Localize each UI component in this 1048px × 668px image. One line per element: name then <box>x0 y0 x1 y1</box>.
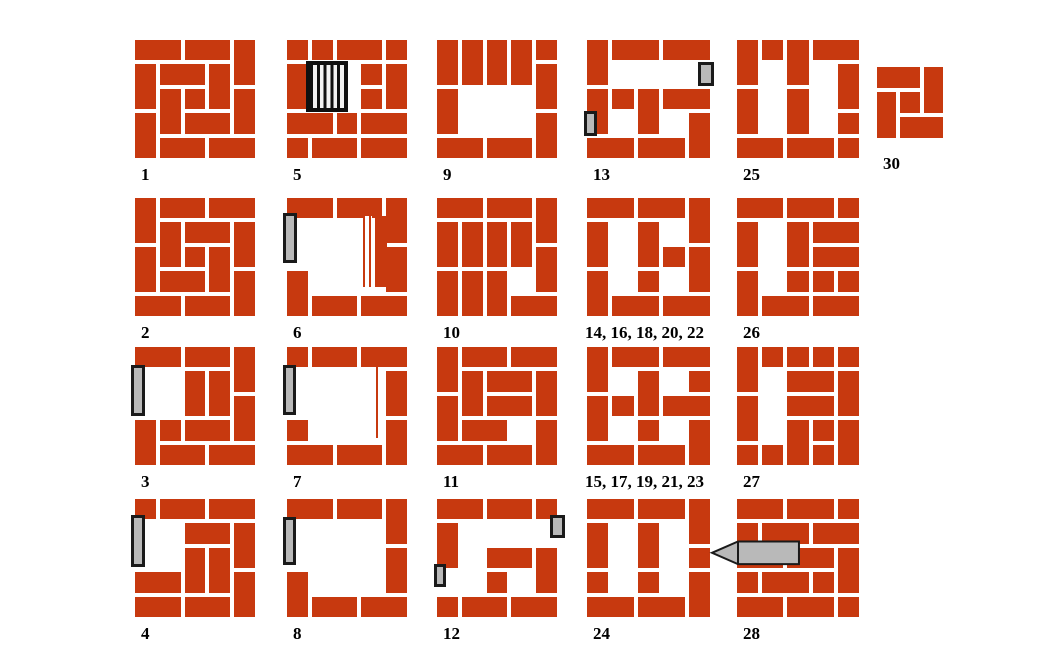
brick <box>462 271 483 316</box>
brick <box>487 371 533 391</box>
brick <box>877 92 896 138</box>
brick <box>487 445 533 465</box>
brick <box>813 247 859 267</box>
brick <box>234 572 255 617</box>
course-panel-14-16-18-20-22 <box>585 196 712 318</box>
brick <box>462 222 483 267</box>
brick <box>160 89 181 134</box>
brick <box>234 40 255 85</box>
course-label: 7 <box>293 472 302 492</box>
brick <box>337 499 383 519</box>
brick <box>437 396 458 441</box>
course-panel-12 <box>435 497 559 619</box>
cleanout-door <box>283 213 297 263</box>
grate-icon <box>306 61 348 113</box>
brick <box>185 371 206 416</box>
brick <box>487 40 508 85</box>
brick <box>638 499 685 519</box>
course-panel-2 <box>133 196 257 318</box>
brick <box>361 89 382 109</box>
brick <box>900 92 919 113</box>
brick <box>135 198 156 243</box>
brick <box>209 198 255 218</box>
brick <box>689 371 710 391</box>
brick <box>160 499 206 519</box>
course-label: 13 <box>593 165 610 185</box>
brick <box>437 445 483 465</box>
brick <box>813 445 834 465</box>
brick <box>437 222 458 267</box>
brick <box>587 198 634 218</box>
brick <box>160 420 181 440</box>
brick <box>813 420 834 440</box>
brick <box>612 396 633 416</box>
brick <box>437 40 458 85</box>
brick <box>312 40 333 60</box>
brick <box>689 548 710 568</box>
brick <box>663 396 710 416</box>
brick <box>337 40 383 60</box>
brick <box>487 499 533 519</box>
brick <box>587 138 634 158</box>
course-label: 15, 17, 19, 21, 23 <box>585 472 704 492</box>
course-panel-8 <box>285 497 409 619</box>
brick <box>386 548 407 593</box>
brick <box>536 113 557 158</box>
brick <box>185 247 206 267</box>
course-panel-1 <box>133 38 257 160</box>
brick <box>813 40 859 60</box>
brick <box>762 572 808 592</box>
brick <box>386 499 407 544</box>
brick <box>312 296 358 316</box>
brick <box>838 113 859 133</box>
brick <box>787 597 833 617</box>
course-panel-28 <box>735 497 861 619</box>
course-label: 3 <box>141 472 150 492</box>
brick <box>160 64 206 84</box>
brick <box>536 198 557 243</box>
brick <box>587 499 634 519</box>
brick <box>511 347 557 367</box>
course-label: 10 <box>443 323 460 343</box>
brick <box>737 40 758 85</box>
brick <box>185 347 231 367</box>
brick <box>337 113 358 133</box>
course-panel-25 <box>735 38 861 160</box>
brick <box>762 347 783 367</box>
brick <box>185 296 231 316</box>
course-label: 30 <box>883 154 900 174</box>
course-label: 25 <box>743 165 760 185</box>
brick <box>185 420 231 440</box>
brick <box>813 523 859 543</box>
brick <box>638 445 685 465</box>
brick <box>287 445 333 465</box>
course-panel-10 <box>435 196 559 318</box>
brick <box>185 597 231 617</box>
brick <box>587 222 608 267</box>
brick <box>185 113 231 133</box>
brick <box>437 597 458 617</box>
brick <box>737 89 758 134</box>
course-panel-3 <box>133 345 257 467</box>
brick <box>437 347 458 392</box>
brick <box>160 271 206 291</box>
brick <box>209 499 255 519</box>
brick <box>900 117 943 138</box>
course-panel-26 <box>735 196 861 318</box>
brick <box>462 420 508 440</box>
brick <box>737 222 758 267</box>
brick <box>312 597 358 617</box>
brick <box>737 572 758 592</box>
brick <box>312 347 358 367</box>
brick <box>135 572 181 592</box>
brick <box>160 445 206 465</box>
course-panel-11 <box>435 345 559 467</box>
brick <box>587 396 608 441</box>
brick <box>386 420 407 465</box>
brick <box>185 548 206 593</box>
damper-valve <box>434 564 446 587</box>
brick <box>487 222 508 267</box>
damper-valve <box>698 62 714 85</box>
brick <box>487 198 533 218</box>
brick <box>487 548 533 568</box>
brick <box>511 40 532 85</box>
brick <box>462 347 508 367</box>
brick <box>587 271 608 316</box>
brick <box>787 396 833 416</box>
brick <box>813 572 834 592</box>
brick <box>737 597 783 617</box>
brick <box>487 572 508 592</box>
brick <box>689 113 710 158</box>
brick <box>135 40 181 60</box>
brick <box>234 396 255 441</box>
brick <box>287 113 333 133</box>
damper-valve <box>584 111 597 135</box>
course-panel-6 <box>285 196 409 318</box>
brick <box>361 347 407 367</box>
brick <box>437 198 483 218</box>
brick <box>209 247 230 292</box>
brick <box>135 420 156 465</box>
damper-valve <box>550 515 564 538</box>
brick <box>536 548 557 593</box>
brick <box>877 67 920 88</box>
brick <box>787 222 808 267</box>
course-label: 4 <box>141 624 150 644</box>
brick <box>612 347 659 367</box>
course-panel-24 <box>585 497 712 619</box>
brick <box>612 296 659 316</box>
brick <box>737 396 758 441</box>
brick <box>209 445 255 465</box>
brick <box>638 222 659 267</box>
brick <box>838 64 859 109</box>
brick <box>536 40 557 60</box>
brick <box>337 445 383 465</box>
course-label: 1 <box>141 165 150 185</box>
brick <box>386 247 407 292</box>
brick <box>185 40 231 60</box>
partition-lines <box>363 216 372 288</box>
brick <box>361 64 382 84</box>
brick <box>209 64 230 109</box>
brick <box>209 138 255 158</box>
course-label: 11 <box>443 472 459 492</box>
brick <box>185 523 231 543</box>
brick <box>838 347 859 367</box>
brick <box>437 89 458 134</box>
brick <box>787 198 833 218</box>
brick <box>838 548 859 593</box>
brick <box>737 198 783 218</box>
brick <box>612 89 633 109</box>
brick <box>638 89 659 134</box>
course-panel-5 <box>285 38 409 160</box>
brick <box>813 271 834 291</box>
brick <box>663 247 684 267</box>
brick <box>361 138 407 158</box>
brick <box>689 247 710 292</box>
brick <box>361 113 407 133</box>
brick <box>787 271 808 291</box>
brick <box>587 597 634 617</box>
brick <box>838 271 859 291</box>
brick <box>587 445 634 465</box>
brick <box>536 420 557 465</box>
brick <box>386 198 407 243</box>
brick <box>638 597 685 617</box>
brick <box>612 40 659 60</box>
brick <box>838 499 859 519</box>
brick <box>234 222 255 267</box>
course-label: 14, 16, 18, 20, 22 <box>585 323 704 343</box>
brick <box>234 347 255 392</box>
brick <box>287 271 308 316</box>
brick <box>762 445 783 465</box>
brick <box>787 371 833 391</box>
brick <box>924 67 943 113</box>
brick <box>737 445 758 465</box>
course-panel-4 <box>133 497 257 619</box>
brick <box>209 548 230 593</box>
brick <box>160 198 206 218</box>
brick <box>437 138 483 158</box>
brick <box>638 572 659 592</box>
brick <box>813 222 859 242</box>
brick <box>511 597 557 617</box>
course-panel-9 <box>435 38 559 160</box>
brick <box>361 597 407 617</box>
cleanout-door <box>131 515 145 566</box>
brick <box>437 499 483 519</box>
brick <box>838 597 859 617</box>
course-label: 8 <box>293 624 302 644</box>
brick <box>587 572 608 592</box>
brick <box>689 572 710 617</box>
brick <box>587 40 608 85</box>
brick <box>737 499 783 519</box>
course-panel-30 <box>875 65 945 140</box>
brick <box>386 371 407 416</box>
brick <box>838 138 859 158</box>
brick <box>437 271 458 316</box>
course-panel-15-17-19-21-23 <box>585 345 712 467</box>
brick <box>663 296 710 316</box>
brick <box>689 198 710 243</box>
brick <box>536 64 557 109</box>
brick <box>787 138 833 158</box>
brick <box>135 247 156 292</box>
brick <box>787 347 808 367</box>
brick <box>511 296 557 316</box>
brick <box>663 40 710 60</box>
brick <box>462 371 483 416</box>
course-label: 26 <box>743 323 760 343</box>
brick <box>462 40 483 85</box>
brick <box>487 138 533 158</box>
brick <box>487 271 508 316</box>
brick <box>185 89 206 109</box>
brick <box>287 572 308 617</box>
brick <box>737 347 758 392</box>
course-label: 28 <box>743 624 760 644</box>
brick <box>638 271 659 291</box>
brick <box>536 371 557 416</box>
brick <box>234 89 255 134</box>
brick <box>287 40 308 60</box>
cleanout-door <box>283 517 297 566</box>
brick <box>511 222 532 267</box>
brick <box>737 271 758 316</box>
brick <box>813 347 834 367</box>
brick <box>185 222 231 242</box>
cleanout-door <box>283 365 297 415</box>
brick <box>287 420 308 440</box>
brick <box>135 597 181 617</box>
brick <box>135 296 181 316</box>
course-label: 9 <box>443 165 452 185</box>
brick <box>638 420 659 440</box>
brick <box>536 247 557 292</box>
flue-arrow-icon <box>711 540 800 566</box>
brick <box>287 138 308 158</box>
brick <box>462 597 508 617</box>
cleanout-door <box>131 365 145 416</box>
brick <box>787 499 833 519</box>
brick <box>787 40 808 85</box>
brick-on-edge <box>375 216 387 288</box>
brick <box>312 138 358 158</box>
brick <box>663 89 710 109</box>
brick <box>838 420 859 465</box>
brick <box>209 371 230 416</box>
brick <box>838 198 859 218</box>
brick <box>287 64 308 109</box>
brick <box>487 396 533 416</box>
brick <box>838 371 859 416</box>
brick <box>234 523 255 568</box>
brick <box>361 296 407 316</box>
brick <box>638 371 659 416</box>
masonry-courses-diagram: 1234567891011121314, 16, 18, 20, 2215, 1… <box>0 0 1048 668</box>
course-label: 12 <box>443 624 460 644</box>
course-panel-7 <box>285 345 409 467</box>
course-label: 6 <box>293 323 302 343</box>
brick <box>437 523 458 568</box>
course-label: 27 <box>743 472 760 492</box>
brick <box>638 523 659 568</box>
course-panel-27 <box>735 345 861 467</box>
brick <box>638 198 685 218</box>
brick <box>813 296 859 316</box>
brick <box>689 499 710 544</box>
brick <box>234 271 255 316</box>
brick <box>663 347 710 367</box>
course-label: 2 <box>141 323 150 343</box>
brick <box>135 113 156 158</box>
brick <box>762 40 783 60</box>
brick <box>638 138 685 158</box>
brick <box>386 64 407 109</box>
course-label: 24 <box>593 624 610 644</box>
brick <box>787 420 808 465</box>
brick <box>587 347 608 392</box>
brick <box>587 523 608 568</box>
brick <box>737 138 783 158</box>
brick <box>762 296 808 316</box>
brick <box>689 420 710 465</box>
course-panel-13 <box>585 38 712 160</box>
brick <box>135 64 156 109</box>
partition-lines <box>376 367 383 438</box>
brick <box>787 89 808 134</box>
brick <box>160 138 206 158</box>
course-label: 5 <box>293 165 302 185</box>
brick <box>160 222 181 267</box>
brick <box>386 40 407 60</box>
